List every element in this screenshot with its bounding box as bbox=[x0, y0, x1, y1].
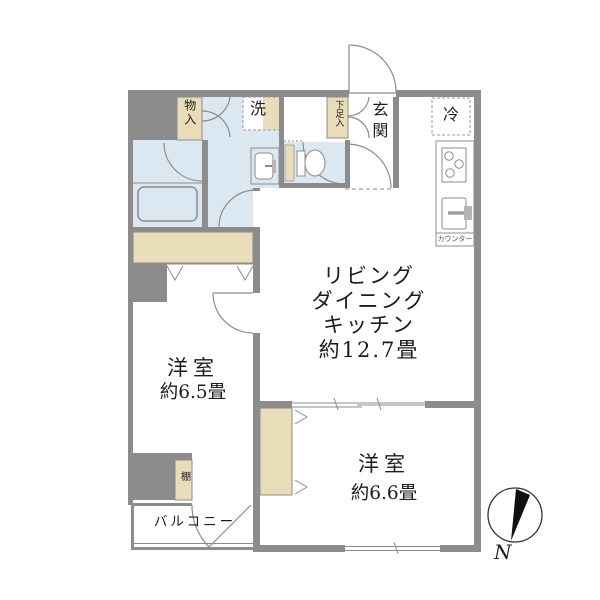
bedroom-west-size: 約6.5畳 bbox=[128, 382, 258, 403]
wall-bath-bottom bbox=[128, 227, 260, 232]
bedroom-south-label: 洋室 約6.6畳 bbox=[320, 452, 448, 504]
bedroom-south-closet bbox=[260, 408, 292, 495]
balcony-boundary bbox=[133, 503, 192, 506]
bedroom-south-size: 約6.6畳 bbox=[320, 483, 448, 504]
shoe-cabinet-label: 下足入 bbox=[333, 100, 343, 127]
ldk-room-label: リビング ダイニング キッチン 約12.7畳 bbox=[293, 264, 445, 362]
sink-faucet-base bbox=[464, 206, 472, 220]
ldk-line-2: ダイニング bbox=[293, 289, 445, 314]
balcony-rail-inner bbox=[133, 543, 253, 544]
folding-door-mark-3 bbox=[295, 410, 307, 424]
wall-bed2-top-left bbox=[260, 401, 292, 408]
storage-label: 物入 bbox=[182, 99, 196, 127]
shelf-label: 棚 bbox=[178, 471, 190, 481]
toilet-counter bbox=[285, 145, 294, 181]
wall-entrance-ldk bbox=[393, 97, 399, 188]
entrance-door-arc bbox=[349, 45, 396, 92]
toilet-tank bbox=[297, 151, 305, 176]
wall-block-mid-left bbox=[128, 263, 167, 302]
washer-label: 洗 bbox=[250, 100, 266, 118]
bedroom-south-name: 洋室 bbox=[320, 452, 448, 476]
wall-bottom-right bbox=[440, 545, 481, 552]
bathroom-floor bbox=[133, 140, 202, 232]
shoe-cabinet-door-arc-bottom bbox=[348, 117, 369, 138]
floor-plan: 物入 洗 下足入 玄関 冷 カウンター 棚 リビング ダイニング キッチン 約1… bbox=[0, 0, 600, 600]
balcony-rail-bottom bbox=[131, 547, 255, 550]
ldk-line-3: キッチン bbox=[293, 313, 445, 338]
wall-ldk-left-b bbox=[253, 227, 260, 293]
toilet-bowl bbox=[305, 150, 325, 176]
ldk-line-4: 約12.7畳 bbox=[293, 338, 445, 363]
kitchen-unit bbox=[436, 141, 474, 246]
wall-bath-wash bbox=[202, 140, 208, 232]
balcony-label: バルコニー bbox=[133, 515, 257, 531]
compass-icon bbox=[488, 488, 542, 542]
bedroom-west-name: 洋室 bbox=[128, 356, 258, 380]
folding-door-mark-2 bbox=[237, 266, 253, 280]
wall-block-top-left bbox=[128, 90, 177, 140]
wall-bottom-left bbox=[253, 545, 345, 552]
wall-wash-toilet bbox=[279, 97, 284, 188]
wall-bed2-top-right bbox=[425, 401, 474, 408]
folding-door-mark-1 bbox=[167, 266, 183, 280]
toilet-icon bbox=[297, 150, 325, 176]
ldk-line-1: リビング bbox=[293, 264, 445, 289]
entrance-label: 玄関 bbox=[369, 101, 387, 143]
ldk-door-arc bbox=[347, 144, 391, 188]
refrigerator-label: 冷 bbox=[443, 106, 459, 124]
washroom-corridor-floor bbox=[202, 188, 253, 227]
wall-toilet-right bbox=[345, 140, 350, 188]
bedroom-west-closet bbox=[133, 232, 253, 263]
kitchen-counter-label: カウンター bbox=[437, 235, 473, 243]
shoe-cabinet-door-arc-top bbox=[348, 97, 369, 116]
wall-top-right bbox=[396, 90, 481, 97]
window-tick bbox=[394, 542, 398, 554]
wall-block-shelf-top bbox=[175, 453, 192, 460]
basin-faucet-base bbox=[272, 160, 276, 173]
folding-door-mark-4 bbox=[295, 480, 307, 494]
bedroom-west-door-arc bbox=[213, 293, 253, 333]
wall-right bbox=[474, 90, 481, 552]
sliding-door-tick-1 bbox=[334, 398, 338, 410]
bedroom-west-label: 洋室 約6.5畳 bbox=[128, 356, 258, 403]
sliding-door-tick-2 bbox=[377, 398, 381, 410]
wall-block-bottom-left bbox=[133, 453, 175, 500]
compass-north-label: N bbox=[494, 541, 512, 564]
